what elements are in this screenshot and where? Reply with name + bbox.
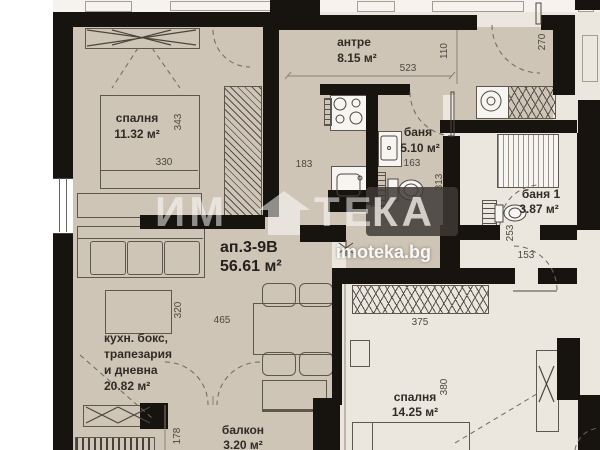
chair-icon bbox=[262, 352, 296, 376]
sofa-cushion bbox=[90, 241, 126, 275]
apartment-id: ап.3-9В bbox=[220, 238, 278, 257]
room-area-bath1: 3.87 м² bbox=[506, 202, 572, 216]
wardrobe-icon bbox=[224, 86, 262, 216]
wall-bath1-bottom-left bbox=[460, 225, 500, 240]
dim-313: 313 bbox=[434, 165, 446, 199]
coffee-table-icon bbox=[105, 290, 172, 334]
wall-living-divider bbox=[332, 284, 342, 405]
room-area-entry: 8.15 м² bbox=[328, 51, 386, 65]
tv-stand-icon bbox=[536, 350, 559, 432]
neighbor-radiator bbox=[582, 35, 598, 82]
neighbor-furniture bbox=[357, 1, 395, 12]
wall-bedroom1-right bbox=[263, 27, 279, 217]
dim-330: 330 bbox=[146, 157, 182, 169]
bed-icon bbox=[352, 422, 470, 450]
stove-icon bbox=[330, 95, 369, 131]
room-label-entry: антре bbox=[330, 35, 378, 49]
floor-passage bbox=[346, 212, 440, 268]
wall-bath1-right bbox=[577, 133, 600, 230]
room-label-bath1: баня 1 bbox=[512, 187, 570, 201]
wall-corridor-bottom bbox=[332, 268, 515, 284]
wardrobe-icon bbox=[352, 285, 489, 314]
chair-icon bbox=[299, 352, 333, 376]
wall-right-mid-chunk bbox=[578, 100, 600, 133]
stove-knobs bbox=[324, 98, 332, 126]
window-frame-line bbox=[59, 178, 60, 232]
bed-footboard-line bbox=[100, 170, 198, 171]
wall-kitchen-bath-divider bbox=[366, 95, 378, 205]
wall-corridor-left bbox=[440, 225, 460, 268]
wall-bath1-bottom-right bbox=[540, 225, 577, 240]
wardrobe-icon bbox=[508, 86, 556, 119]
wall-kitchen-lower-chunk bbox=[328, 190, 366, 212]
bookshelf-icon bbox=[75, 437, 155, 450]
room-label-bedroom1: спалня bbox=[106, 111, 168, 125]
sofa-cushion bbox=[127, 241, 163, 275]
wall-kitchen-top bbox=[320, 84, 410, 95]
window-frame-line bbox=[66, 178, 67, 232]
dim-380: 380 bbox=[439, 370, 451, 404]
wall-bath1-top bbox=[440, 120, 577, 133]
room-label-living-3: и дневна bbox=[104, 363, 194, 377]
dim-153: 153 bbox=[508, 250, 544, 262]
wall-top-chunk bbox=[270, 0, 320, 30]
dresser-icon bbox=[85, 28, 200, 49]
washing-machine-icon bbox=[476, 86, 509, 119]
wall-right-corridor bbox=[553, 25, 575, 95]
chair-icon bbox=[262, 283, 296, 307]
dim-320: 320 bbox=[173, 293, 185, 327]
dim-270: 270 bbox=[537, 25, 549, 59]
room-label-bath: баня bbox=[397, 125, 439, 139]
floor-plan: спалня 11.32 м² антре 8.15 м² баня 5.10 … bbox=[0, 0, 600, 450]
wall-balcony-left-chunk bbox=[140, 403, 168, 429]
room-label-bedroom2: спалня bbox=[384, 390, 446, 404]
dim-253: 253 bbox=[505, 216, 517, 250]
shower-icon bbox=[497, 134, 559, 188]
dim-343: 343 bbox=[173, 105, 185, 139]
wall-bedroom1-bottom bbox=[140, 215, 265, 229]
nightstand-icon bbox=[350, 340, 370, 367]
wall-bedroom2-right-upper bbox=[557, 338, 580, 400]
dim-110: 110 bbox=[439, 34, 451, 68]
wall-corridor-bottom-right bbox=[538, 268, 577, 284]
dim-465: 465 bbox=[204, 315, 240, 327]
window-bedroom1 bbox=[53, 178, 73, 234]
dim-523: 523 bbox=[390, 63, 426, 75]
neighbor-furniture bbox=[85, 1, 132, 12]
sofa-cushion bbox=[164, 241, 200, 275]
room-area-balcony: 3.20 м² bbox=[205, 438, 281, 450]
dim-163: 163 bbox=[394, 158, 430, 170]
bed-icon bbox=[100, 95, 200, 189]
dining-table-icon bbox=[253, 303, 337, 355]
neighbor-kitchen bbox=[432, 1, 524, 12]
dim-375: 375 bbox=[402, 317, 438, 329]
room-area-bath: 5.10 м² bbox=[395, 141, 445, 155]
room-label-living-2: трапезария bbox=[104, 347, 194, 361]
chair-icon bbox=[299, 283, 333, 307]
room-area-living: 20.82 м² bbox=[104, 379, 194, 393]
dim-178: 178 bbox=[172, 419, 184, 450]
room-label-living-1: кухн. бокс, bbox=[104, 331, 194, 345]
wall-balcony-right bbox=[313, 398, 340, 450]
bed-pillow-line bbox=[372, 422, 373, 450]
wall-top-right-corner bbox=[575, 0, 600, 10]
dim-183: 183 bbox=[286, 159, 322, 171]
room-area-bedroom2: 14.25 м² bbox=[380, 405, 450, 419]
wall-bedroom2-right-lower bbox=[578, 395, 600, 450]
room-label-balcony: балкон bbox=[205, 423, 281, 437]
wall-top-entry bbox=[320, 15, 477, 30]
room-area-bedroom1: 11.32 м² bbox=[100, 127, 174, 141]
apartment-area: 56.61 м² bbox=[220, 257, 282, 276]
sofa-back-line bbox=[77, 238, 203, 239]
wall-under-kitchen bbox=[300, 225, 346, 242]
wall-top-bedroom1 bbox=[53, 12, 270, 27]
